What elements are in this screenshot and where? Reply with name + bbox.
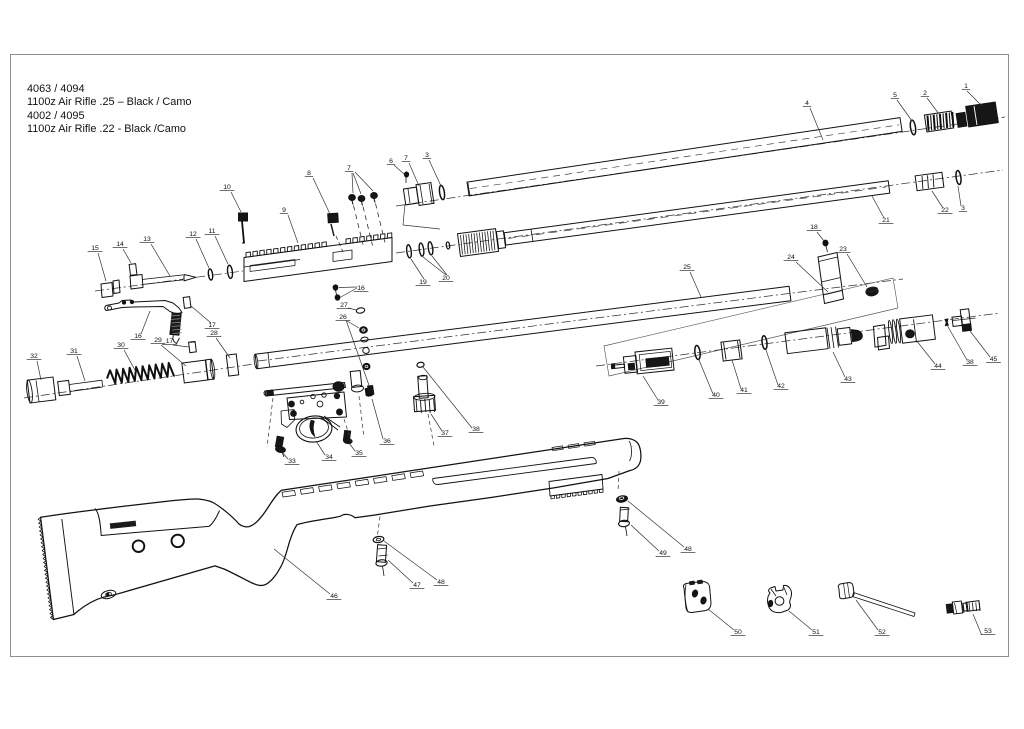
svg-text:39: 39 xyxy=(657,399,665,406)
svg-text:9: 9 xyxy=(282,207,286,214)
svg-text:38: 38 xyxy=(966,359,974,366)
svg-text:28: 28 xyxy=(210,330,218,337)
svg-text:53: 53 xyxy=(984,628,992,635)
svg-text:30: 30 xyxy=(117,342,125,349)
svg-text:13: 13 xyxy=(143,236,151,243)
svg-text:29: 29 xyxy=(154,337,162,344)
svg-text:32: 32 xyxy=(30,353,38,360)
svg-text:10: 10 xyxy=(223,184,231,191)
svg-text:21: 21 xyxy=(882,217,890,224)
svg-text:7: 7 xyxy=(404,155,408,162)
svg-text:4063 / 4094: 4063 / 4094 xyxy=(27,83,85,95)
svg-text:24: 24 xyxy=(787,254,795,261)
svg-text:33: 33 xyxy=(288,458,296,465)
svg-text:44: 44 xyxy=(934,363,942,370)
svg-text:25: 25 xyxy=(683,264,691,271)
svg-text:23: 23 xyxy=(839,246,847,253)
svg-text:1100z Air Rifle .25 – Black /: 1100z Air Rifle .25 – Black / Camo xyxy=(27,96,191,108)
svg-text:41: 41 xyxy=(740,387,748,394)
svg-text:17: 17 xyxy=(166,338,174,345)
svg-text:52: 52 xyxy=(878,629,886,636)
svg-text:20: 20 xyxy=(442,275,450,282)
svg-text:19: 19 xyxy=(419,279,427,286)
svg-text:1: 1 xyxy=(964,83,968,90)
svg-text:4002 / 4095: 4002 / 4095 xyxy=(27,110,85,122)
svg-text:18: 18 xyxy=(810,224,818,231)
svg-text:17: 17 xyxy=(208,322,216,329)
svg-text:34: 34 xyxy=(325,454,333,461)
svg-text:1100z Air Rifle .22 - Black /C: 1100z Air Rifle .22 - Black /Camo xyxy=(27,123,186,135)
svg-text:22: 22 xyxy=(941,207,949,214)
svg-text:35: 35 xyxy=(355,450,363,457)
svg-text:37: 37 xyxy=(441,430,449,437)
svg-text:11: 11 xyxy=(208,228,215,235)
svg-text:47: 47 xyxy=(413,582,421,589)
svg-text:45: 45 xyxy=(990,356,998,363)
svg-text:16: 16 xyxy=(134,333,142,340)
svg-text:3: 3 xyxy=(961,205,965,212)
svg-text:48: 48 xyxy=(437,579,445,586)
svg-text:36: 36 xyxy=(383,438,391,445)
svg-text:27: 27 xyxy=(340,302,348,309)
svg-text:3: 3 xyxy=(425,152,429,159)
svg-text:38: 38 xyxy=(472,426,480,433)
svg-text:26: 26 xyxy=(339,314,347,321)
svg-text:40: 40 xyxy=(712,392,720,399)
svg-text:12: 12 xyxy=(189,231,197,238)
svg-text:48: 48 xyxy=(684,546,692,553)
svg-text:51: 51 xyxy=(812,629,820,636)
svg-text:6: 6 xyxy=(389,158,393,165)
svg-text:49: 49 xyxy=(659,550,667,557)
svg-text:50: 50 xyxy=(734,629,742,636)
svg-text:42: 42 xyxy=(777,383,785,390)
svg-text:14: 14 xyxy=(116,241,124,248)
svg-text:15: 15 xyxy=(91,245,99,252)
svg-text:7: 7 xyxy=(347,165,351,172)
svg-text:5: 5 xyxy=(893,92,897,99)
svg-text:2: 2 xyxy=(923,90,927,97)
svg-text:16: 16 xyxy=(357,285,365,292)
svg-text:43: 43 xyxy=(844,376,852,383)
svg-text:31: 31 xyxy=(70,348,78,355)
svg-text:46: 46 xyxy=(330,593,338,600)
svg-text:4: 4 xyxy=(805,100,809,107)
svg-text:8: 8 xyxy=(307,170,311,177)
